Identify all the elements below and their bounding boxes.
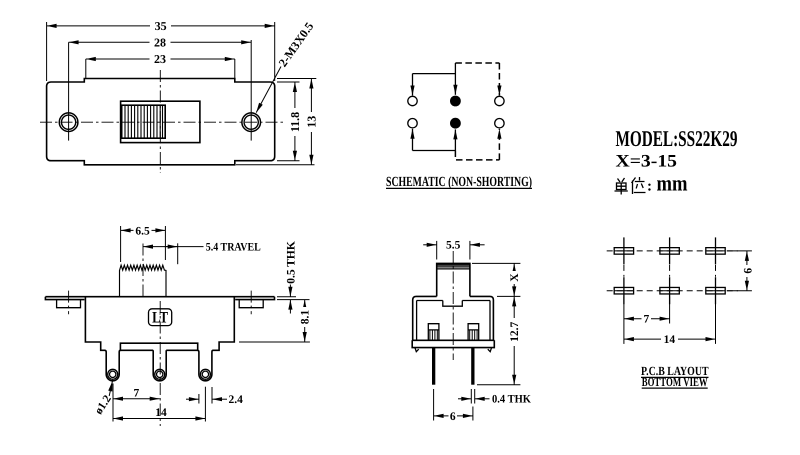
svg-text:mm: mm: [657, 170, 688, 195]
svg-text:14: 14: [155, 407, 167, 419]
svg-text:7: 7: [134, 387, 140, 399]
svg-text:0.4 THK: 0.4 THK: [492, 394, 531, 406]
svg-text:X: X: [509, 273, 521, 282]
svg-text:5.5: 5.5: [446, 240, 461, 252]
svg-text:35: 35: [155, 19, 167, 33]
svg-text:MODEL:SS22K29: MODEL:SS22K29: [616, 126, 738, 151]
svg-text:8.1: 8.1: [300, 310, 312, 325]
svg-text:0.5 THK: 0.5 THK: [285, 241, 297, 284]
svg-text:23: 23: [154, 52, 166, 66]
svg-text:X=3-15: X=3-15: [616, 150, 678, 170]
svg-text:6.5: 6.5: [135, 225, 150, 237]
svg-text:14: 14: [664, 334, 676, 346]
svg-text:6: 6: [742, 268, 754, 274]
svg-text:BOTTOM VIEW: BOTTOM VIEW: [642, 375, 708, 389]
svg-text:6: 6: [450, 411, 456, 423]
svg-text:11.8: 11.8: [288, 112, 302, 132]
svg-text:SCHEMATIC (NON-SHORTING): SCHEMATIC (NON-SHORTING): [386, 175, 532, 190]
svg-text::: :: [647, 179, 652, 195]
svg-text:7: 7: [644, 314, 650, 326]
svg-text:LT: LT: [152, 309, 168, 326]
svg-text:12.7: 12.7: [509, 321, 521, 341]
svg-text:13: 13: [304, 116, 318, 128]
svg-text:2.4: 2.4: [229, 394, 244, 406]
svg-text:5.4 TRAVEL: 5.4 TRAVEL: [206, 242, 261, 254]
svg-text:28: 28: [154, 35, 166, 49]
